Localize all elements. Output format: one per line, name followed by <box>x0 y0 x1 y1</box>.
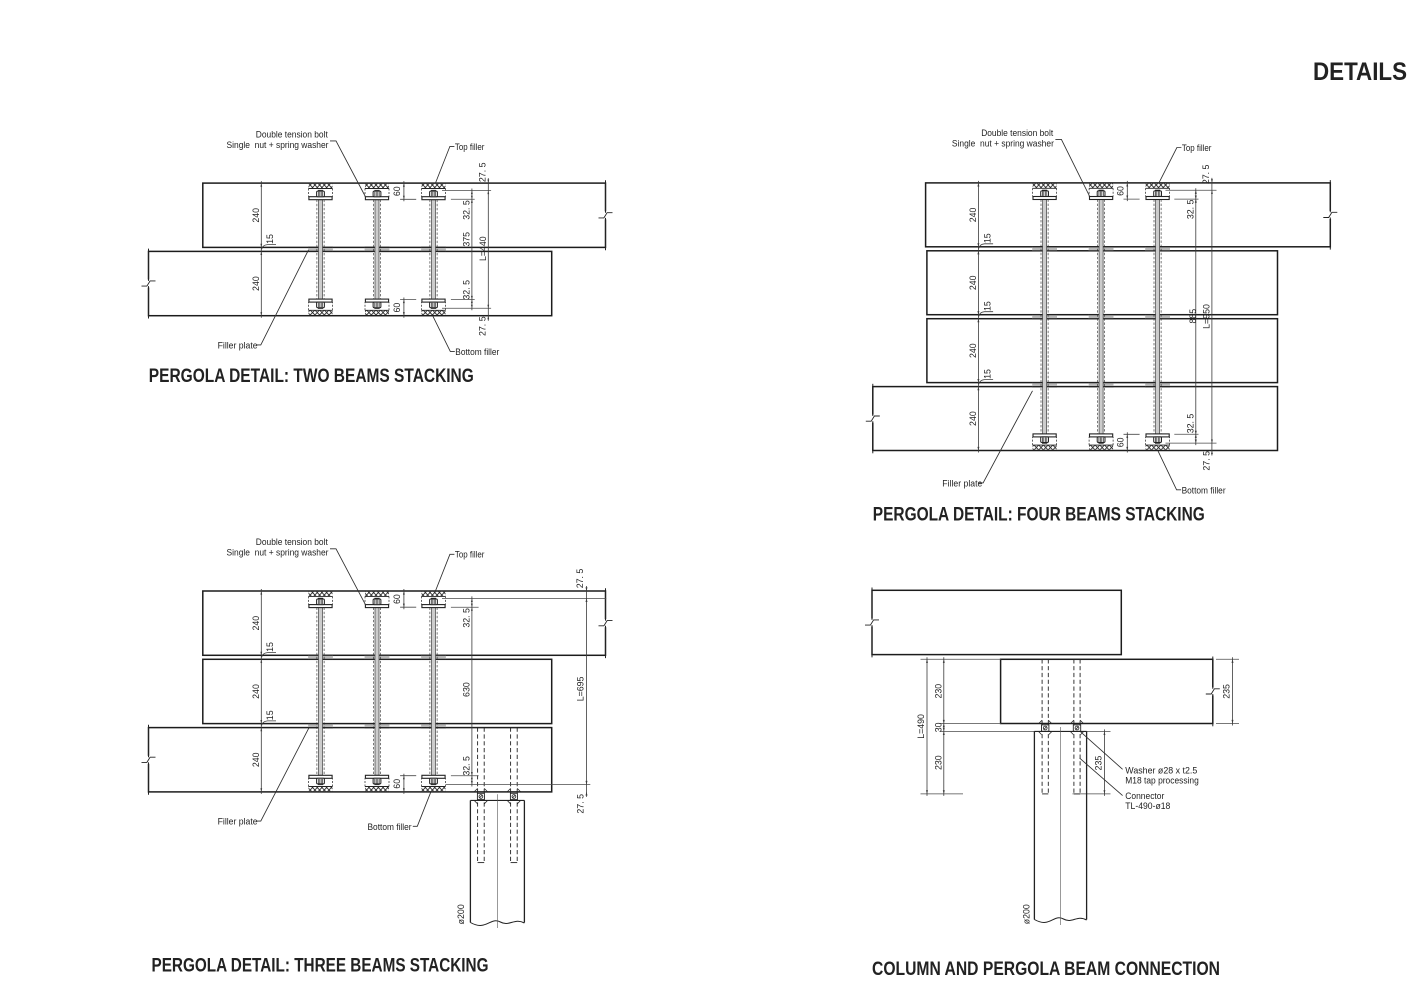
svg-text:60: 60 <box>392 594 402 604</box>
svg-text:27. 5: 27. 5 <box>576 794 586 814</box>
svg-text:32. 5: 32. 5 <box>461 200 471 220</box>
svg-text:60: 60 <box>1116 186 1126 196</box>
svg-text:240: 240 <box>251 752 261 767</box>
svg-text:27. 5: 27. 5 <box>1202 451 1212 471</box>
svg-text:32. 5: 32. 5 <box>461 756 471 776</box>
svg-text:Bottom filler: Bottom filler <box>1182 485 1226 495</box>
svg-text:L=695: L=695 <box>575 676 585 701</box>
svg-text:240: 240 <box>968 411 978 426</box>
svg-text:L=950: L=950 <box>1201 304 1211 329</box>
svg-text:Bottom filler: Bottom filler <box>455 347 499 357</box>
svg-text:TL-490-ø18: TL-490-ø18 <box>1125 801 1170 811</box>
svg-text:Single nut + spring washer: Single nut + spring washer <box>952 138 1054 148</box>
svg-text:Top filler: Top filler <box>455 142 485 152</box>
svg-text:Single nut + spring washer: Single nut + spring washer <box>227 548 329 558</box>
svg-text:COLUMN AND PERGOLA BEAM CONNEC: COLUMN AND PERGOLA BEAM CONNECTION <box>872 958 1220 980</box>
svg-text:PERGOLA DETAIL: THREE BEAMS ST: PERGOLA DETAIL: THREE BEAMS STACKING <box>152 954 489 976</box>
svg-text:60: 60 <box>392 303 402 313</box>
svg-text:27. 5: 27. 5 <box>575 569 585 589</box>
svg-text:15: 15 <box>982 301 992 311</box>
svg-text:240: 240 <box>251 616 261 631</box>
svg-text:27. 5: 27. 5 <box>478 316 488 336</box>
svg-text:15: 15 <box>982 369 992 379</box>
svg-text:Filler plate: Filler plate <box>218 340 258 350</box>
svg-text:Single nut + spring washer: Single nut + spring washer <box>227 140 329 150</box>
svg-text:240: 240 <box>968 207 978 222</box>
svg-text:L=440: L=440 <box>478 236 488 261</box>
svg-text:15: 15 <box>265 234 275 244</box>
svg-text:32. 5: 32. 5 <box>1185 414 1195 434</box>
svg-text:60: 60 <box>392 186 402 196</box>
svg-text:Filler plate: Filler plate <box>942 478 982 488</box>
svg-text:240: 240 <box>251 276 261 291</box>
svg-text:240: 240 <box>251 208 261 223</box>
svg-text:230: 230 <box>934 755 944 770</box>
svg-text:32. 5: 32. 5 <box>1185 200 1195 220</box>
svg-text:240: 240 <box>968 275 978 290</box>
svg-text:235: 235 <box>1094 756 1104 771</box>
svg-text:375: 375 <box>461 232 471 247</box>
svg-text:630: 630 <box>461 682 471 697</box>
svg-text:Filler plate: Filler plate <box>218 817 258 827</box>
svg-text:Double tension bolt: Double tension bolt <box>981 128 1053 138</box>
svg-text:ø200: ø200 <box>1021 904 1031 924</box>
svg-text:240: 240 <box>968 343 978 358</box>
svg-text:885: 885 <box>1188 309 1198 324</box>
svg-text:Double tension bolt: Double tension bolt <box>256 129 328 139</box>
svg-text:DETAILS: DETAILS <box>1313 58 1407 86</box>
svg-text:Double tension bolt: Double tension bolt <box>256 537 328 547</box>
svg-text:32. 5: 32. 5 <box>461 280 471 300</box>
svg-text:230: 230 <box>934 684 944 699</box>
svg-text:M18 tap processing: M18 tap processing <box>1125 775 1199 785</box>
svg-text:27. 5: 27. 5 <box>1201 165 1211 185</box>
svg-text:Bottom filler: Bottom filler <box>368 822 412 832</box>
svg-text:60: 60 <box>392 779 402 789</box>
svg-text:235: 235 <box>1222 684 1232 699</box>
svg-text:Top filler: Top filler <box>1182 143 1212 153</box>
svg-text:60: 60 <box>1116 437 1126 447</box>
svg-text:PERGOLA DETAIL: TWO BEAMS STAC: PERGOLA DETAIL: TWO BEAMS STACKING <box>149 365 474 387</box>
svg-text:Top filler: Top filler <box>455 550 485 560</box>
svg-text:L=490: L=490 <box>916 714 926 739</box>
svg-text:240: 240 <box>251 684 261 699</box>
svg-text:15: 15 <box>982 233 992 243</box>
svg-text:15: 15 <box>265 642 275 652</box>
svg-text:15: 15 <box>265 710 275 720</box>
svg-text:Washer ø28 x t2.5: Washer ø28 x t2.5 <box>1125 765 1197 775</box>
svg-text:27. 5: 27. 5 <box>478 162 488 182</box>
svg-text:Connector: Connector <box>1125 791 1164 801</box>
svg-text:30: 30 <box>934 722 944 732</box>
svg-text:PERGOLA DETAIL: FOUR BEAMS STA: PERGOLA DETAIL: FOUR BEAMS STACKING <box>873 504 1205 526</box>
svg-text:ø200: ø200 <box>456 904 466 924</box>
svg-text:32. 5: 32. 5 <box>461 608 471 628</box>
